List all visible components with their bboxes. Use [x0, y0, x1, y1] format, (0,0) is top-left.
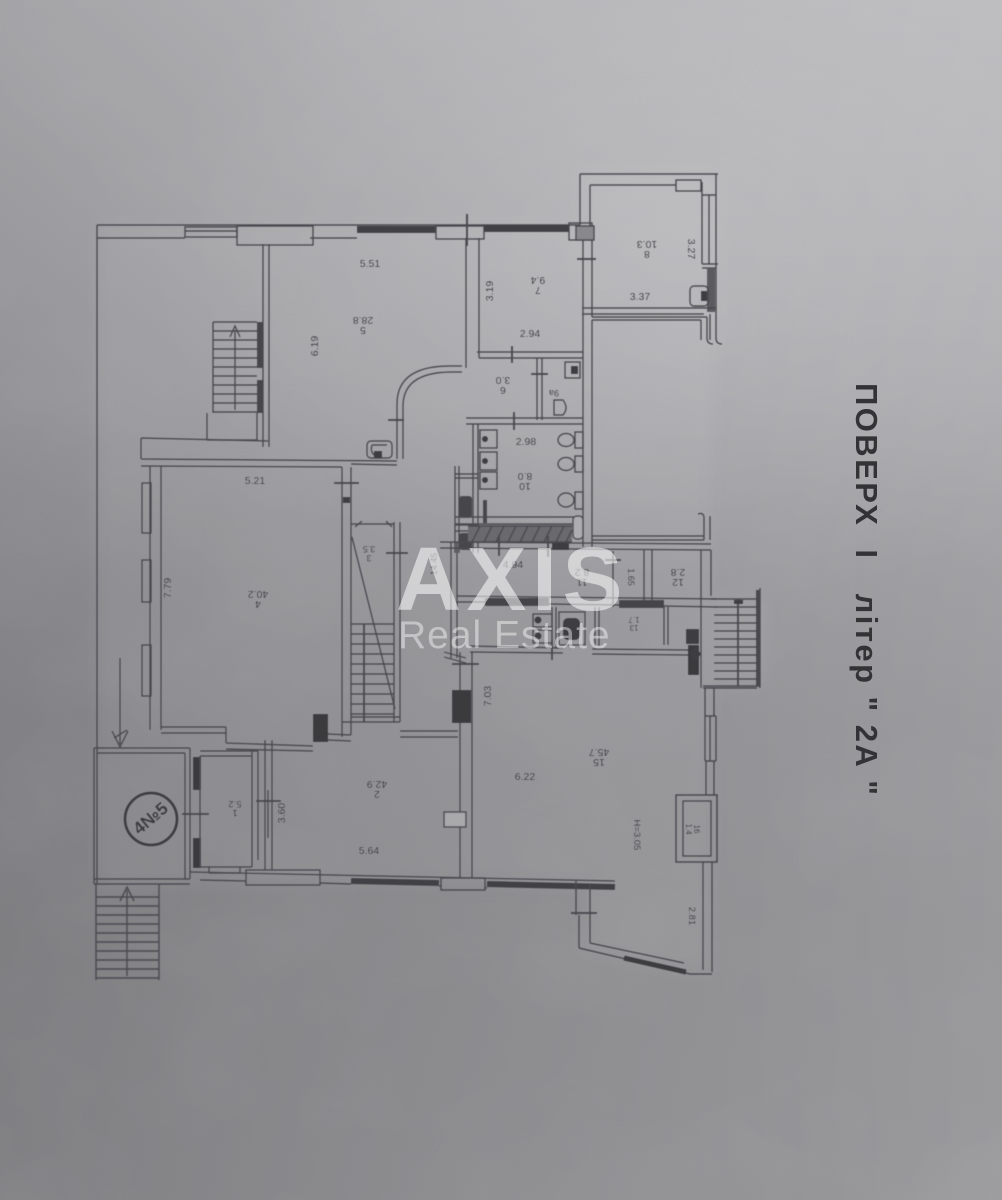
svg-text:ПОВЕРХ I літер " 2А ": ПОВЕРХ I літер " 2А "	[849, 383, 884, 795]
svg-text:3.19: 3.19	[484, 281, 496, 302]
svg-text:161.4: 161.4	[684, 823, 701, 835]
svg-text:3.37: 3.37	[630, 291, 651, 303]
svg-text:5.64: 5.64	[359, 845, 380, 857]
svg-text:Real Estate: Real Estate	[398, 614, 611, 657]
svg-text:7.79: 7.79	[162, 578, 174, 599]
svg-text:131.7: 131.7	[628, 615, 640, 632]
svg-text:2.94: 2.94	[520, 328, 541, 340]
svg-text:9а: 9а	[549, 388, 559, 398]
svg-text:6.22: 6.22	[515, 771, 536, 783]
svg-text:3.60: 3.60	[276, 803, 288, 824]
svg-text:Н=3.05: Н=3.05	[631, 820, 642, 851]
svg-text:122.8: 122.8	[671, 566, 686, 588]
svg-text:108.0: 108.0	[518, 470, 533, 492]
svg-text:7.03: 7.03	[482, 686, 494, 707]
svg-text:2.81: 2.81	[686, 907, 697, 926]
svg-text:2.98: 2.98	[516, 436, 537, 448]
svg-text:5.51: 5.51	[360, 258, 381, 270]
svg-text:3.27: 3.27	[685, 239, 697, 260]
svg-text:6.19: 6.19	[309, 336, 321, 357]
svg-text:5.21: 5.21	[245, 475, 266, 487]
